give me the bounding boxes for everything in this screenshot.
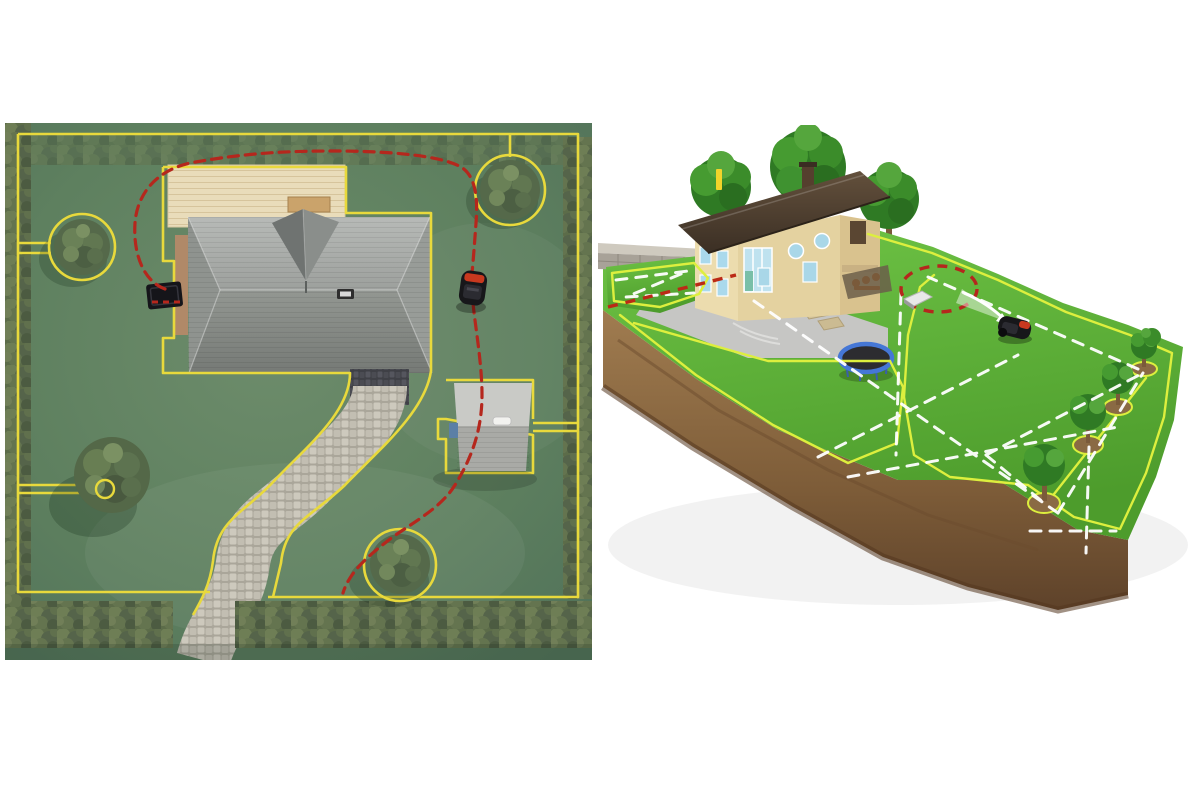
window [803,262,817,282]
topdown-yard-map-image [5,123,592,660]
trampoline [839,344,893,382]
shed-door [449,423,458,438]
hedge-shadow [5,644,592,660]
charging-station [146,281,183,310]
chimney-cap [799,162,817,167]
isometric-lawn-diorama-image [598,125,1200,660]
shed-vent [493,417,511,425]
house [188,209,432,373]
hedge-bottom-right [235,601,592,648]
hedge-bottom-left [5,601,173,648]
roof-vent [337,289,354,299]
deck-bench [288,197,330,212]
yellow-marker-bar [716,169,722,190]
round-window [815,234,830,249]
upper-door [850,221,866,244]
window [758,268,770,286]
small-tree-island [1023,444,1065,513]
round-window [789,244,804,259]
small-tree-island [1102,362,1134,415]
